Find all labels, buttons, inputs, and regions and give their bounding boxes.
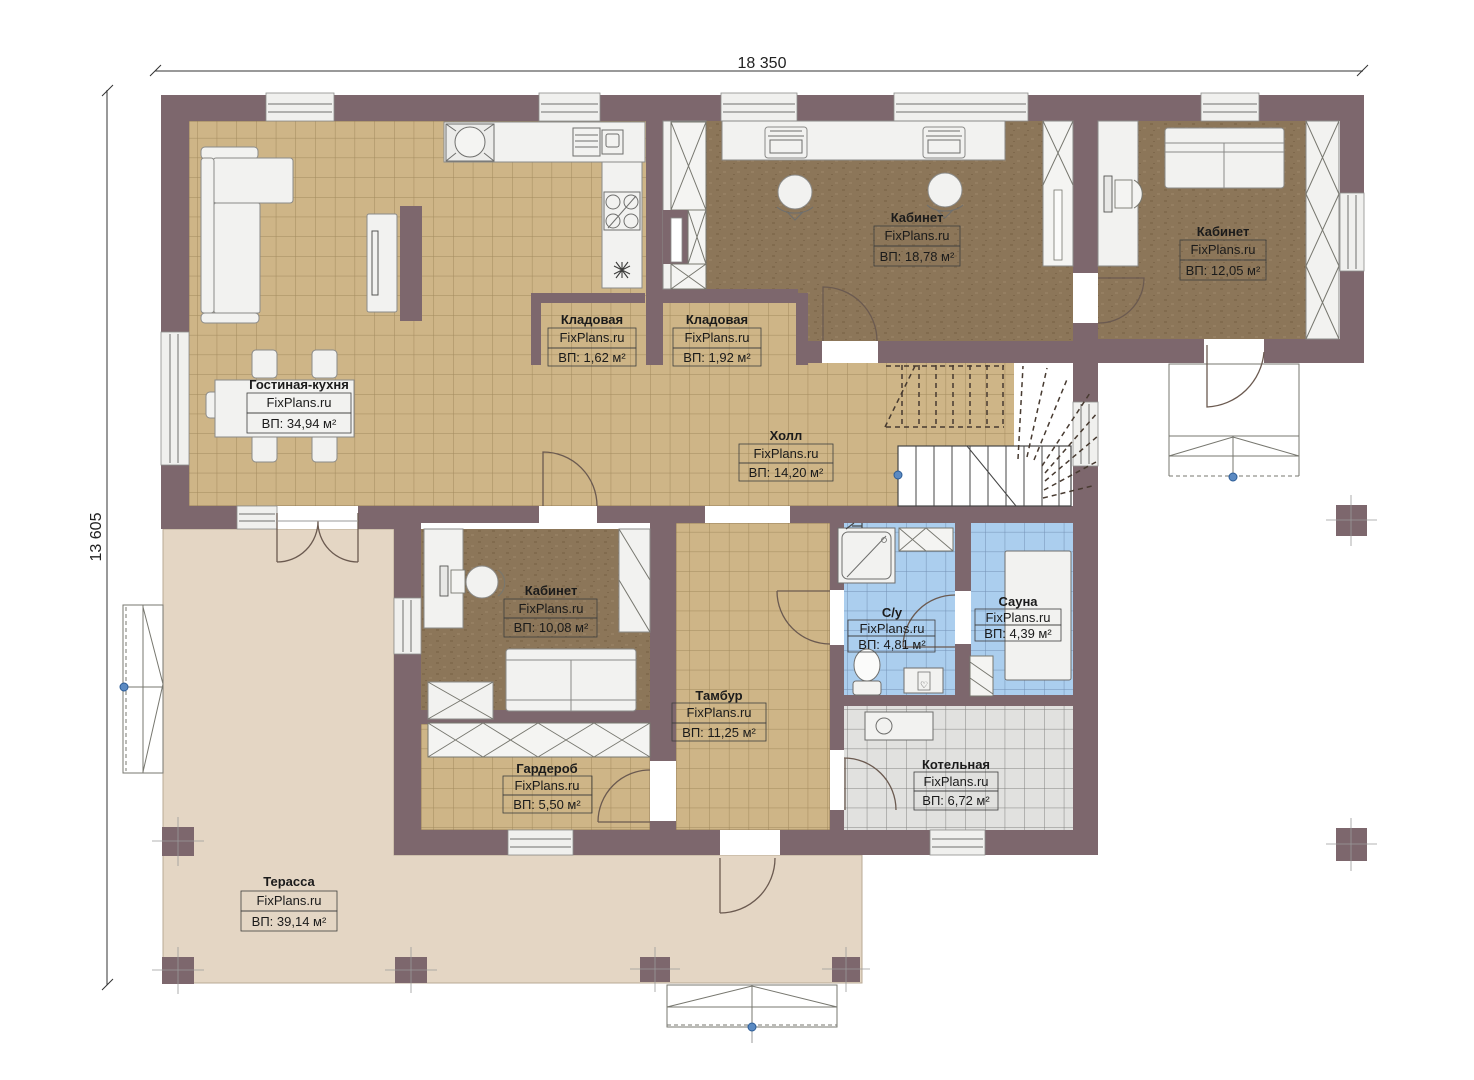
- svg-text:Кладовая: Кладовая: [561, 312, 623, 327]
- svg-text:FixPlans.ru: FixPlans.ru: [923, 774, 988, 789]
- svg-text:ВП: 6,72 м²: ВП: 6,72 м²: [922, 793, 990, 808]
- svg-text:ВП: 11,25 м²: ВП: 11,25 м²: [682, 725, 756, 740]
- svg-text:13 605: 13 605: [88, 512, 105, 561]
- svg-text:ВП: 12,05 м²: ВП: 12,05 м²: [1186, 263, 1261, 278]
- svg-text:ВП: 4,39 м²: ВП: 4,39 м²: [984, 626, 1052, 641]
- svg-text:Тамбур: Тамбур: [695, 688, 742, 703]
- svg-text:Холл: Холл: [770, 428, 803, 443]
- svg-text:Гостиная-кухня: Гостиная-кухня: [249, 377, 349, 392]
- svg-text:Кладовая: Кладовая: [686, 312, 748, 327]
- svg-text:FixPlans.ru: FixPlans.ru: [266, 395, 331, 410]
- svg-text:FixPlans.ru: FixPlans.ru: [518, 601, 583, 616]
- svg-text:FixPlans.ru: FixPlans.ru: [514, 778, 579, 793]
- svg-text:Гардероб: Гардероб: [516, 761, 577, 776]
- svg-text:ВП: 39,14 м²: ВП: 39,14 м²: [252, 914, 327, 929]
- svg-text:ВП: 34,94 м²: ВП: 34,94 м²: [262, 416, 337, 431]
- svg-text:ВП: 14,20 м²: ВП: 14,20 м²: [749, 465, 824, 480]
- svg-text:FixPlans.ru: FixPlans.ru: [256, 893, 321, 908]
- svg-text:ВП: 1,92 м²: ВП: 1,92 м²: [683, 350, 751, 365]
- svg-text:Сауна: Сауна: [998, 594, 1038, 609]
- svg-text:Кабинет: Кабинет: [525, 583, 578, 598]
- svg-text:FixPlans.ru: FixPlans.ru: [1190, 242, 1255, 257]
- svg-text:♡: ♡: [920, 680, 928, 690]
- svg-text:18 350: 18 350: [738, 55, 787, 72]
- svg-text:FixPlans.ru: FixPlans.ru: [753, 446, 818, 461]
- svg-text:Котельная: Котельная: [922, 757, 990, 772]
- svg-text:FixPlans.ru: FixPlans.ru: [684, 330, 749, 345]
- svg-text:ВП: 10,08 м²: ВП: 10,08 м²: [514, 620, 589, 635]
- svg-text:FixPlans.ru: FixPlans.ru: [985, 610, 1050, 625]
- svg-text:FixPlans.ru: FixPlans.ru: [859, 621, 924, 636]
- svg-text:FixPlans.ru: FixPlans.ru: [686, 705, 751, 720]
- svg-text:Кабинет: Кабинет: [1197, 224, 1250, 239]
- svg-text:FixPlans.ru: FixPlans.ru: [559, 330, 624, 345]
- svg-text:ВП: 18,78 м²: ВП: 18,78 м²: [880, 249, 955, 264]
- svg-text:ВП: 5,50 м²: ВП: 5,50 м²: [513, 797, 581, 812]
- svg-text:ВП: 4,81 м²: ВП: 4,81 м²: [858, 637, 926, 652]
- svg-text:FixPlans.ru: FixPlans.ru: [884, 228, 949, 243]
- svg-text:ВП: 1,62 м²: ВП: 1,62 м²: [558, 350, 626, 365]
- svg-text:Терасса: Терасса: [263, 874, 315, 889]
- svg-text:С/у: С/у: [882, 605, 903, 620]
- svg-text:Кабинет: Кабинет: [891, 210, 944, 225]
